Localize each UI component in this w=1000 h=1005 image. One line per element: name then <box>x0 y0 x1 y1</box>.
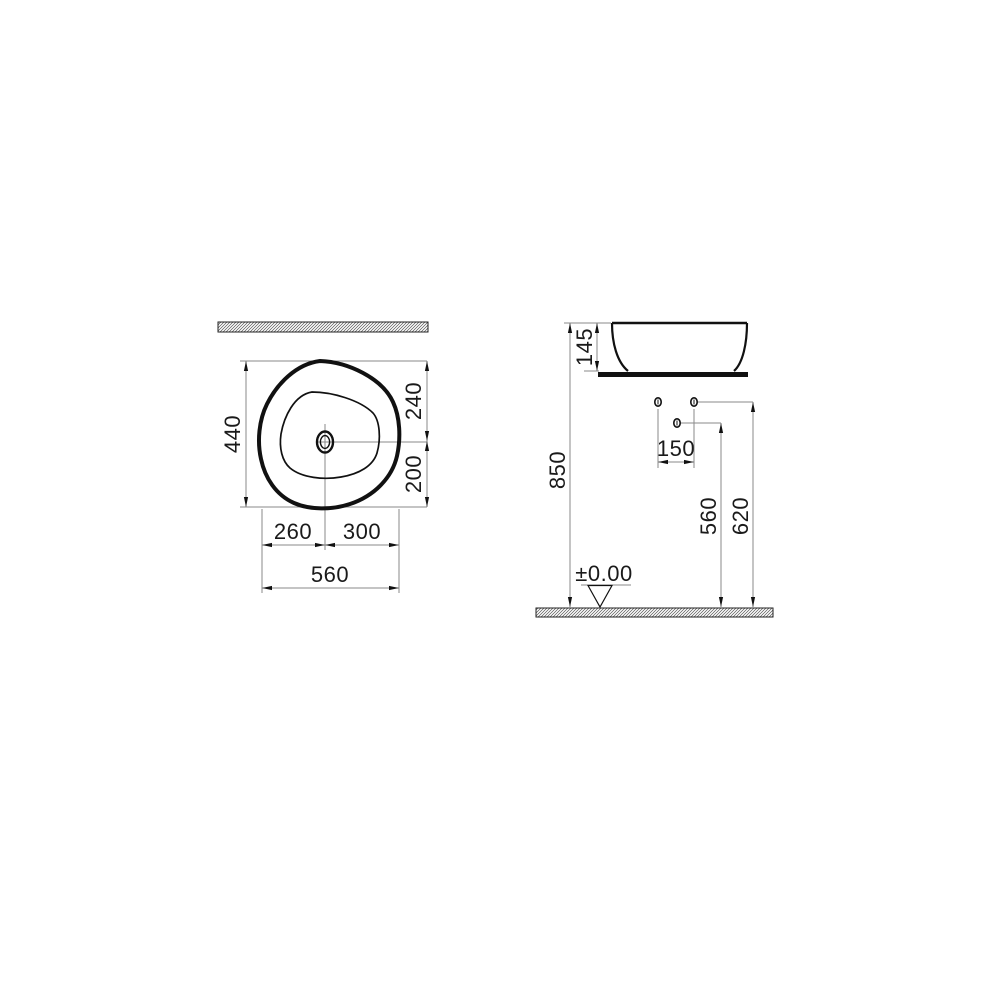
dim-560-side-label: 560 <box>696 497 721 535</box>
dim-150-label: 150 <box>657 436 695 461</box>
dim-260-label: 260 <box>274 519 312 544</box>
dim-560-label: 560 <box>311 562 349 587</box>
wall-hatch-bar <box>218 322 428 332</box>
plan-view: 440 240 200 260 300 560 <box>218 322 429 593</box>
countertop-bar <box>598 372 748 377</box>
side-elevation-view: 145 850 150 560 620 ±0.00 <box>536 323 773 617</box>
dim-300-label: 300 <box>343 519 381 544</box>
tap-hole-middle <box>674 419 680 427</box>
floor-datum-label: ±0.00 <box>575 561 632 586</box>
dim-145-label: 145 <box>572 328 597 366</box>
dim-240-label: 240 <box>401 382 426 420</box>
basin-side-profile <box>612 323 747 371</box>
drawing-svg: 440 240 200 260 300 560 <box>0 0 1000 1000</box>
datum-level-icon <box>588 586 612 608</box>
tap-hole-right <box>691 398 697 406</box>
tap-hole-left <box>655 398 661 406</box>
floor-hatch-bar <box>536 608 773 617</box>
dim-440-label: 440 <box>220 415 245 453</box>
technical-drawing: 440 240 200 260 300 560 <box>0 0 1000 1000</box>
dim-620-label: 620 <box>728 497 753 535</box>
dim-200-label: 200 <box>401 455 426 493</box>
dim-850-label: 850 <box>545 451 570 489</box>
